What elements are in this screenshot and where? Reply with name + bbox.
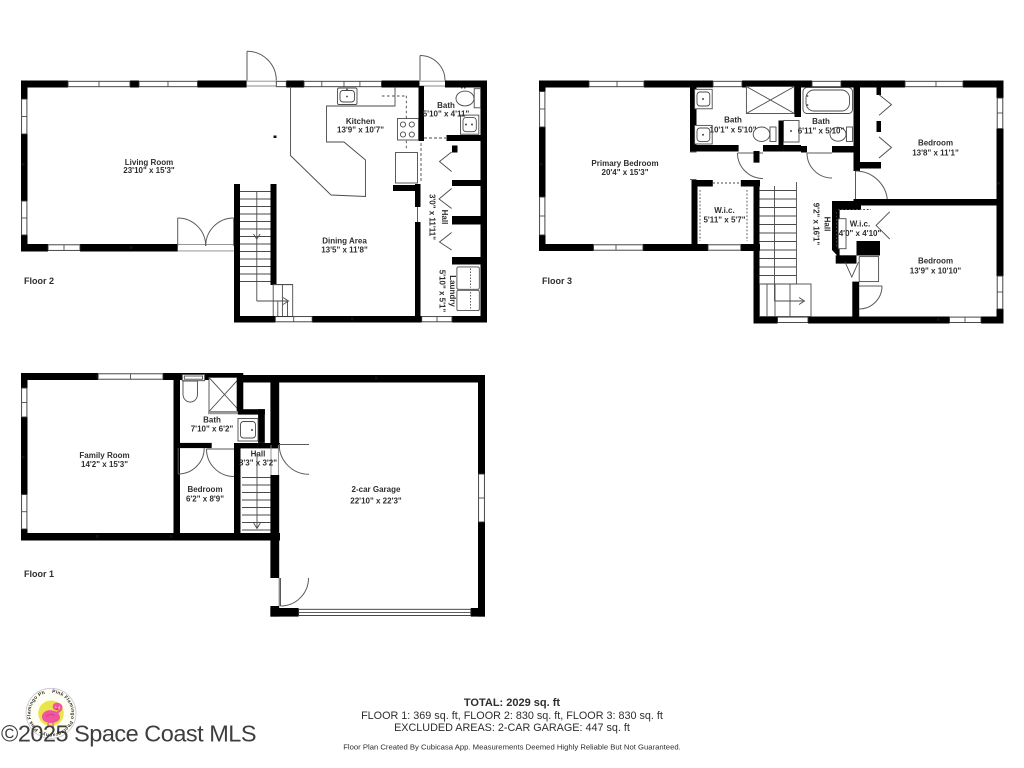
svg-text:6'11" x 5'10": 6'11" x 5'10" bbox=[798, 126, 845, 135]
svg-text:Bedroom: Bedroom bbox=[187, 485, 222, 494]
svg-text:23'10" x 15'3": 23'10" x 15'3" bbox=[123, 166, 175, 175]
svg-text:7'10" x 6'2": 7'10" x 6'2" bbox=[191, 425, 234, 434]
svg-text:Floor Plan Created By Cubicasa: Floor Plan Created By Cubicasa App. Meas… bbox=[343, 743, 681, 752]
svg-text:Hall: Hall bbox=[440, 210, 449, 225]
svg-text:Hall: Hall bbox=[251, 450, 266, 459]
svg-text:5'10" x 5'1": 5'10" x 5'1" bbox=[438, 270, 447, 313]
svg-text:Bedroom: Bedroom bbox=[918, 139, 953, 148]
svg-text:13'9" x 10'10": 13'9" x 10'10" bbox=[910, 267, 962, 276]
svg-text:Bath: Bath bbox=[203, 415, 221, 424]
svg-text:Dining Area: Dining Area bbox=[322, 237, 367, 246]
svg-text:3'3" x 3'2": 3'3" x 3'2" bbox=[239, 459, 277, 468]
svg-text:Primary Bedroom: Primary Bedroom bbox=[591, 159, 658, 168]
svg-text:5'10" x 4'11": 5'10" x 4'11" bbox=[423, 110, 470, 119]
svg-text:14'2" x 15'3": 14'2" x 15'3" bbox=[81, 460, 128, 469]
svg-text:13'5" x 11'8": 13'5" x 11'8" bbox=[321, 246, 368, 255]
svg-text:10'1" x 5'10": 10'1" x 5'10" bbox=[710, 125, 757, 134]
svg-text:6'2" x 8'9": 6'2" x 8'9" bbox=[186, 494, 224, 503]
svg-text:4'0" x 4'10": 4'0" x 4'10" bbox=[839, 229, 882, 238]
svg-text:Laundry: Laundry bbox=[448, 275, 457, 307]
svg-text:3'0" x 11'11": 3'0" x 11'11" bbox=[428, 194, 437, 240]
svg-text:13'9" x 10'7": 13'9" x 10'7" bbox=[337, 125, 384, 134]
svg-text:TOTAL: 2029 sq. ft: TOTAL: 2029 sq. ft bbox=[464, 697, 561, 709]
svg-text:Bath: Bath bbox=[812, 117, 830, 126]
svg-text:Family Room: Family Room bbox=[79, 451, 129, 460]
svg-text:22'10" x 22'3": 22'10" x 22'3" bbox=[350, 497, 402, 506]
svg-text:Floor 3: Floor 3 bbox=[542, 276, 572, 286]
svg-text:5'11" x 5'7": 5'11" x 5'7" bbox=[703, 215, 745, 224]
svg-text:20'4" x 15'3": 20'4" x 15'3" bbox=[602, 168, 649, 177]
svg-text:2-car Garage: 2-car Garage bbox=[352, 485, 401, 494]
svg-text:13'8" x 11'1": 13'8" x 11'1" bbox=[912, 149, 959, 158]
svg-text:Floor 1: Floor 1 bbox=[24, 569, 54, 579]
svg-text:Floor 2: Floor 2 bbox=[24, 276, 54, 286]
svg-text:Bedroom: Bedroom bbox=[918, 257, 953, 266]
svg-text:9'2" x 16'1": 9'2" x 16'1" bbox=[812, 203, 821, 246]
svg-text:W.i.c.: W.i.c. bbox=[850, 220, 870, 229]
svg-text:FLOOR 1: 369 sq. ft, FLOOR 2:: FLOOR 1: 369 sq. ft, FLOOR 2: 830 sq. ft… bbox=[361, 710, 663, 722]
svg-text:Hall: Hall bbox=[823, 217, 832, 232]
svg-text:Bath: Bath bbox=[724, 116, 742, 125]
svg-text:W.i.c.: W.i.c. bbox=[714, 206, 734, 215]
svg-text:©2025 Space Coast MLS: ©2025 Space Coast MLS bbox=[1, 721, 256, 747]
svg-text:EXCLUDED AREAS: 2-CAR GARAGE:: EXCLUDED AREAS: 2-CAR GARAGE: 447 sq. ft bbox=[394, 722, 630, 734]
